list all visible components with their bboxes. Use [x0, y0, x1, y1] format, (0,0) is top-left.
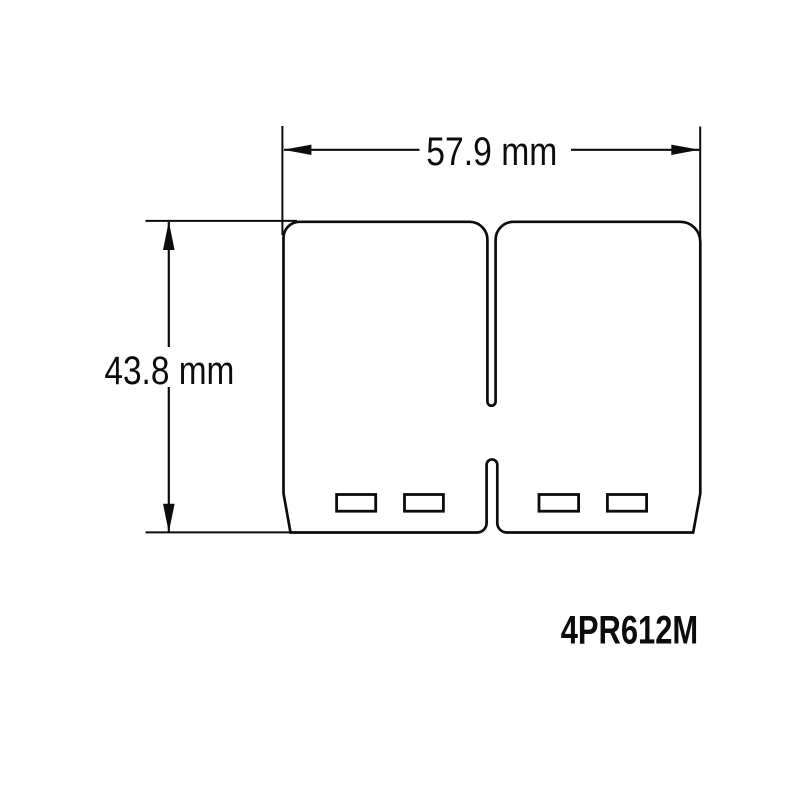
svg-text:43.8 mm: 43.8 mm [104, 349, 234, 393]
svg-text:57.9 mm: 57.9 mm [426, 130, 557, 174]
svg-text:4PR612M: 4PR612M [561, 609, 699, 653]
